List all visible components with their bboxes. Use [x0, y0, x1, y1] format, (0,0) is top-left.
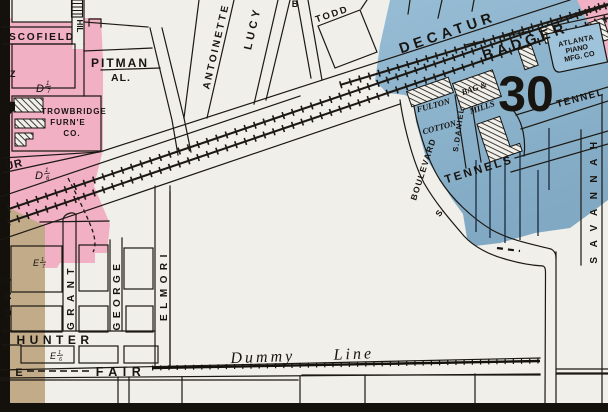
svg-text:s: s [2, 350, 5, 358]
svg-text:Dummy: Dummy [229, 348, 295, 367]
svg-text:SCOFIELD: SCOFIELD [9, 32, 75, 43]
svg-text:SAVANNAH: SAVANNAH [589, 132, 600, 263]
svg-text:TROWBRIDGE: TROWBRIDGE [41, 107, 107, 116]
svg-text:Z: Z [10, 69, 16, 79]
svg-text:ELMORI: ELMORI [159, 249, 170, 321]
svg-text:HUNTER: HUNTER [17, 333, 94, 347]
svg-text:B: B [292, 0, 299, 9]
svg-text:GEORGE: GEORGE [112, 260, 123, 331]
svg-text:FAIR: FAIR [96, 365, 146, 379]
svg-text:E: E [15, 367, 22, 379]
svg-text:CO.: CO. [63, 129, 80, 138]
svg-text:D: D [36, 83, 44, 95]
svg-text:PITMAN: PITMAN [91, 56, 149, 70]
svg-text:AL.: AL. [111, 72, 131, 84]
svg-text:Line: Line [332, 345, 374, 363]
svg-text:E: E [33, 258, 40, 268]
svg-text:GRANT: GRANT [66, 262, 77, 330]
svg-text:E: E [50, 351, 57, 361]
svg-text:D: D [35, 170, 43, 182]
svg-text:30: 30 [498, 66, 554, 122]
svg-text:HIL: HIL [75, 20, 84, 33]
svg-text:FURN'E: FURN'E [50, 118, 85, 127]
svg-text:FORT: FORT [2, 268, 14, 333]
